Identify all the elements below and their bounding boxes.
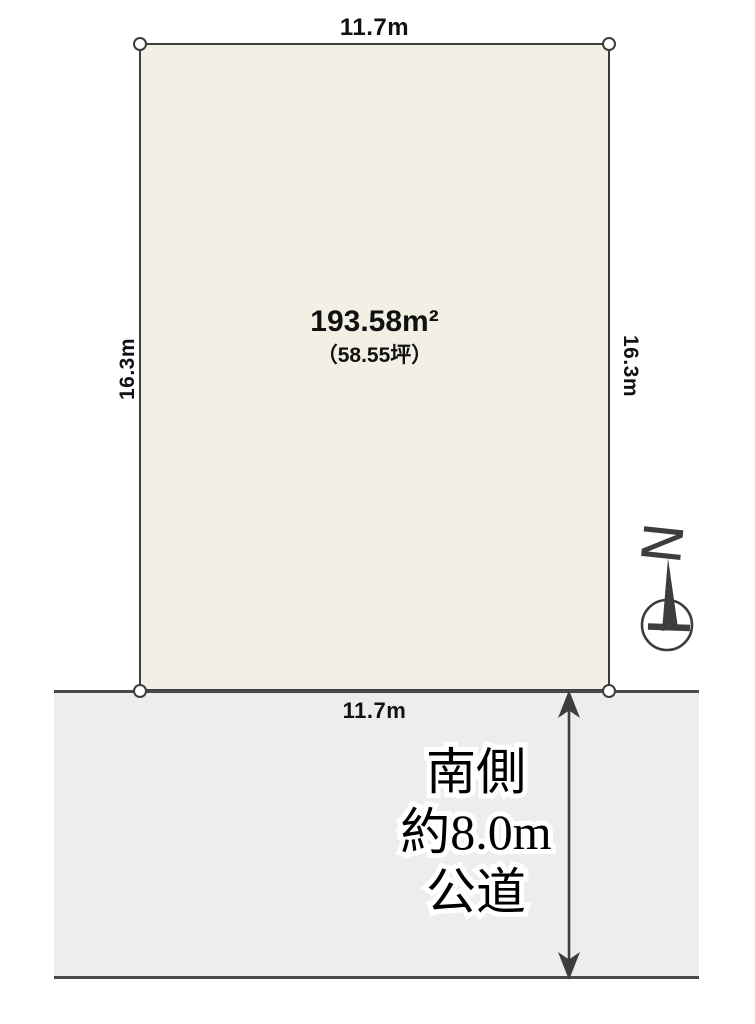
road-label-line-2-text: 約8.0m — [400, 804, 551, 860]
land-plot-diagram: 11.7m 11.7m 16.3m 16.3m 193.58m² （58.55坪… — [0, 0, 755, 1024]
corner-marker-bottom-left — [133, 684, 147, 698]
corner-marker-top-left — [133, 37, 147, 51]
road-label-line-3-text: 公道 — [426, 864, 526, 920]
dimension-label-bottom: 11.7m — [139, 698, 610, 724]
road-width-arrow — [553, 689, 585, 981]
plot-area-tsubo-label: （58.55坪） — [139, 342, 610, 370]
north-compass: N — [620, 512, 712, 654]
compass-needle — [662, 558, 678, 631]
dimension-label-top: 11.7m — [139, 14, 610, 42]
dimension-label-left: 16.3m — [116, 338, 140, 400]
corner-marker-top-right — [602, 37, 616, 51]
compass-north-label: N — [628, 520, 695, 567]
road-label-line-1-text: 南側 — [426, 744, 526, 800]
plot-area-sqm-label: 193.58m² — [139, 305, 610, 339]
dimension-label-right: 16.3m — [618, 335, 642, 397]
plot-area-block: 193.58m² （58.55坪） — [139, 305, 610, 370]
corner-marker-bottom-right — [602, 684, 616, 698]
